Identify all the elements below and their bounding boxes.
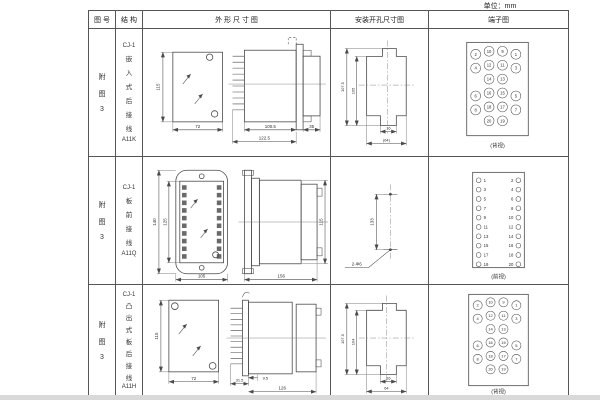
structure-model-2: CJ-1 (123, 185, 136, 191)
terminal-19 (476, 261, 481, 266)
outline-cell-3: 115 72 31.5 9.5 126 (143, 285, 331, 397)
structure-name-3: 凸出式板后接线 (126, 300, 133, 382)
terminal-9 (476, 215, 481, 220)
terminal-number: 16 (488, 339, 493, 344)
terminal-number: 9 (501, 48, 504, 53)
terminal-number: 20 (488, 366, 493, 371)
screw-hole (211, 110, 217, 116)
terminal-number: 4 (475, 65, 478, 70)
terminal-number: 7 (515, 107, 518, 112)
screw-hole (199, 173, 204, 178)
terminal-number: 16 (509, 243, 514, 248)
terminal-number: 2 (477, 302, 479, 307)
terminal-number: 4 (511, 187, 514, 192)
terminal-diagram-a11h: 2468101214161820911131517191357 (背视) (429, 286, 568, 396)
dim-slot-width: 16 (386, 125, 391, 130)
terminal-number: 8 (477, 356, 480, 361)
terminal-number: 13 (501, 326, 506, 331)
fig-no-cell-2: 附图3 (89, 157, 116, 285)
dim-height: 115 (154, 331, 159, 339)
terminal-number: 7 (515, 356, 517, 361)
terminal-number: 14 (488, 326, 493, 331)
terminal-7 (476, 205, 481, 210)
screw-hole (199, 265, 204, 270)
screw-hole (206, 54, 212, 60)
terminal-number: 18 (487, 104, 492, 109)
figure-number-1: 附图3 (99, 72, 106, 113)
terminal-number: 15 (501, 339, 506, 344)
structure-model-1: CJ-1 (123, 43, 136, 49)
terminal-comb (233, 56, 245, 110)
terminal-number: 2 (475, 51, 478, 56)
dim-hole-spacing: 133 (370, 217, 375, 225)
dim-outer-height: 140 (152, 217, 157, 225)
terminal-number: 19 (484, 261, 489, 266)
hook-symbol (242, 292, 249, 297)
terminal-2 (516, 177, 521, 182)
dim-outer-height: 107.5 (340, 81, 345, 92)
drawings-table: 图 号 结 构 外 形 尺 寸 图 安装开孔尺寸图 端子图 附图3 CJ-1 嵌… (88, 10, 569, 397)
terminal-number: 4 (477, 316, 480, 321)
terminal-number: 12 (487, 62, 492, 67)
dim-slot-width: 16 (386, 375, 391, 380)
col-header-fig-no: 图 号 (89, 11, 116, 29)
terminal-block-outline (469, 294, 529, 385)
terminal-number: 3 (484, 187, 487, 192)
terminal-number: 19 (500, 118, 505, 123)
terminal-number: 12 (509, 224, 514, 229)
fig-no-cell-1: 附图3 (89, 29, 116, 157)
terminal-number: 14 (487, 76, 492, 81)
terminal-12 (516, 224, 521, 229)
terminal-number: 8 (475, 107, 478, 112)
flange (296, 44, 303, 130)
terminal-number: 7 (484, 205, 487, 210)
dim-height: 115 (155, 82, 160, 90)
terminal-number: 6 (475, 93, 478, 98)
terminal-number: 1 (484, 177, 487, 182)
dim-body-depth: 100.5 (265, 123, 277, 128)
dim-outer-height: 107.5 (340, 333, 345, 344)
terminal-cell-1: 2468101214161820911131517191357 (背视) (429, 29, 569, 157)
terminal-20 (516, 261, 521, 266)
terminal-number: 15 (484, 243, 489, 248)
terminal-number: 10 (509, 215, 514, 220)
terminal-list: 1234567891011121314151617181920 (476, 177, 520, 266)
terminal-number: 1 (515, 302, 518, 307)
terminal-number: 5 (515, 93, 518, 98)
install-drawing-a11k: 107.5 105 16 (64) (331, 30, 428, 156)
terminal-13 (476, 233, 481, 238)
dim-inner-height: 125 (162, 217, 167, 225)
install-cell-3: 107.5 104 16 64 (331, 285, 429, 397)
terminal-number: 6 (477, 342, 480, 347)
dim-inner-height: 104 (350, 337, 355, 344)
terminal-8 (516, 205, 521, 210)
front-view-body (173, 52, 223, 122)
terminal-14 (516, 233, 521, 238)
screw-hole (209, 362, 216, 369)
hole-callout: 2-Φ6 (352, 261, 362, 266)
dim-width: 72 (191, 375, 196, 380)
col-header-outline: 外 形 尺 寸 图 (143, 11, 331, 29)
terminal-11 (476, 224, 481, 229)
terminal-number: 17 (500, 104, 505, 109)
structure-code-3: A11H (122, 384, 137, 390)
terminal-number: 1 (515, 51, 518, 56)
front-view-body (169, 300, 219, 372)
terminal-number: 6 (511, 196, 514, 201)
terminal-number: 5 (515, 342, 518, 347)
dim-width: (64) (383, 137, 391, 142)
col-header-terminal: 端子图 (429, 11, 569, 29)
fig-no-cell-3: 附图3 (89, 285, 116, 397)
terminal-number: 12 (488, 313, 492, 318)
rear-block (303, 56, 320, 116)
terminal-number: 10 (487, 48, 492, 53)
view-label: (前视) (491, 272, 506, 280)
structure-code-2: A11Q (122, 251, 137, 257)
dim-inner-height: 105 (350, 86, 355, 93)
install-drawing-a11h: 107.5 104 16 64 (331, 286, 428, 396)
install-cell-1: 107.5 105 16 (64) (331, 29, 429, 157)
manual-page: 单位：mm 图 号 结 构 外 形 尺 寸 图 安装开孔尺寸图 端子图 附图3 … (0, 0, 600, 400)
terminal-cell-3: 2468101214161820911131517191357 (背视) (429, 285, 569, 397)
structure-model-3: CJ-1 (123, 292, 136, 298)
view-label: (背视) (491, 387, 506, 395)
terminal-number: 5 (484, 196, 487, 201)
terminal-number: 18 (488, 353, 493, 358)
page-edge-shadow (0, 395, 600, 400)
terminal-grid: 2468101214161820911131517191357 (471, 46, 521, 125)
terminal-number: 13 (484, 233, 489, 238)
outline-cell-1: 115 72 100.5 122.5 35 (143, 29, 331, 157)
side-view-body (244, 50, 296, 122)
terminal-number: 15 (500, 90, 505, 95)
dim-total-depth: 156 (278, 273, 286, 278)
terminal-15 (476, 243, 481, 248)
terminal-number: 20 (487, 118, 492, 123)
install-drawing-a11q: 133 2-Φ6 (331, 158, 428, 284)
dim-rear-depth: 35 (309, 123, 314, 128)
terminal-diagram-a11k: 2468101214161820911131517191357 (背视) (429, 30, 568, 156)
dim-total-depth: 126 (279, 385, 287, 390)
terminal-comb (231, 308, 243, 364)
terminal-5 (476, 196, 481, 201)
terminal-number: 9 (484, 215, 487, 220)
terminal-number: 3 (515, 65, 518, 70)
dim-width: 64 (384, 385, 389, 390)
terminal-number: 10 (488, 299, 493, 304)
terminal-number: 11 (501, 313, 506, 318)
outline-drawing-a11k: 115 72 100.5 122.5 35 (143, 30, 330, 156)
col-header-install: 安装开孔尺寸图 (331, 11, 429, 29)
terminal-number: 16 (487, 90, 492, 95)
figure-number-3: 附图3 (99, 320, 106, 361)
terminal-number: 9 (502, 299, 505, 304)
structure-code-1: A11K (122, 137, 136, 143)
lifting-hook (288, 37, 296, 44)
dim-width: 72 (195, 123, 200, 128)
screw-hole (171, 302, 178, 309)
col-header-structure: 结 构 (116, 11, 143, 29)
terminal-1 (476, 177, 481, 182)
terminal-4 (516, 187, 521, 192)
dim-step: 9.5 (263, 375, 269, 380)
terminal-3 (476, 187, 481, 192)
terminal-17 (476, 252, 481, 257)
dim-side-height: 115 (319, 217, 324, 225)
structure-cell-3: CJ-1 凸出式板后接线 A11H (116, 285, 143, 397)
view-label: (背视) (490, 141, 505, 149)
terminal-number: 18 (509, 252, 514, 257)
dim-total-depth: 122.5 (259, 135, 271, 140)
terminal-number: 14 (509, 233, 514, 238)
terminal-number: 17 (501, 353, 505, 358)
outline-cell-2: 140 125 105 156 115 (143, 157, 331, 285)
terminal-number: 2 (511, 177, 514, 182)
terminal-10 (516, 215, 521, 220)
terminal-16 (516, 243, 521, 248)
terminal-number: 13 (500, 76, 505, 81)
terminal-number: 3 (515, 316, 518, 321)
terminal-number: 11 (500, 62, 505, 67)
dim-width: 105 (198, 273, 206, 278)
dim-comb-depth: 31.5 (236, 377, 245, 382)
structure-name-1: 嵌入式后接线 (126, 53, 133, 133)
structure-name-2: 板前接线 (126, 195, 133, 247)
terminal-diagram-a11q: 1234567891011121314151617181920 (前视) (429, 158, 568, 284)
outline-drawing-a11h: 115 72 31.5 9.5 126 (143, 286, 330, 396)
outline-drawing-a11q: 140 125 105 156 115 (143, 158, 330, 284)
terminal-grid: 2468101214161820911131517191357 (473, 297, 521, 373)
terminal-18 (516, 252, 521, 257)
structure-cell-2: CJ-1 板前接线 A11Q (116, 157, 143, 285)
terminal-cell-2: 1234567891011121314151617181920 (前视) (429, 157, 569, 285)
terminal-6 (516, 196, 521, 201)
terminal-number: 8 (511, 205, 514, 210)
install-cell-2: 133 2-Φ6 (331, 157, 429, 285)
cutout-profile (367, 48, 407, 125)
structure-cell-1: CJ-1 嵌入式后接线 A11K (116, 29, 143, 157)
terminal-number: 11 (484, 224, 489, 229)
terminal-number: 19 (501, 366, 506, 371)
figure-number-2: 附图3 (99, 200, 106, 241)
terminal-number: 17 (484, 252, 489, 257)
terminal-number: 20 (509, 261, 514, 266)
